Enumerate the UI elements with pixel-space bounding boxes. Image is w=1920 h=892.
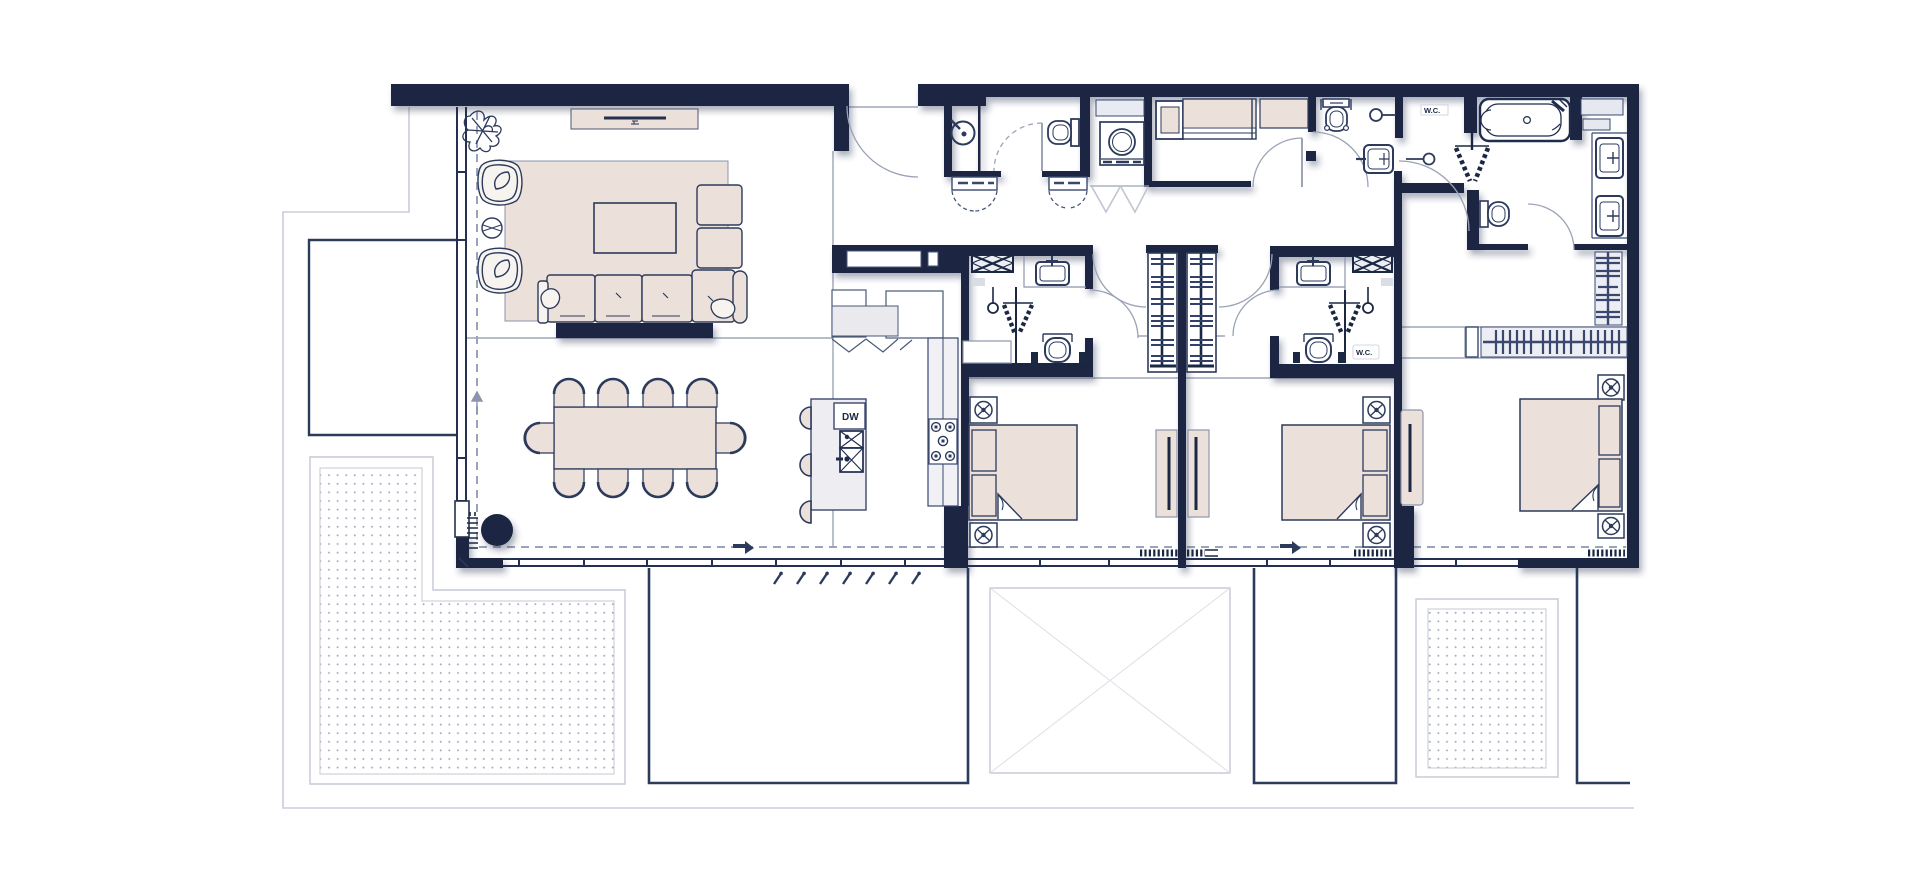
svg-text:W.C.: W.C. — [1424, 106, 1440, 115]
svg-text:DW: DW — [842, 412, 859, 423]
svg-text:W.C.: W.C. — [1356, 348, 1372, 357]
